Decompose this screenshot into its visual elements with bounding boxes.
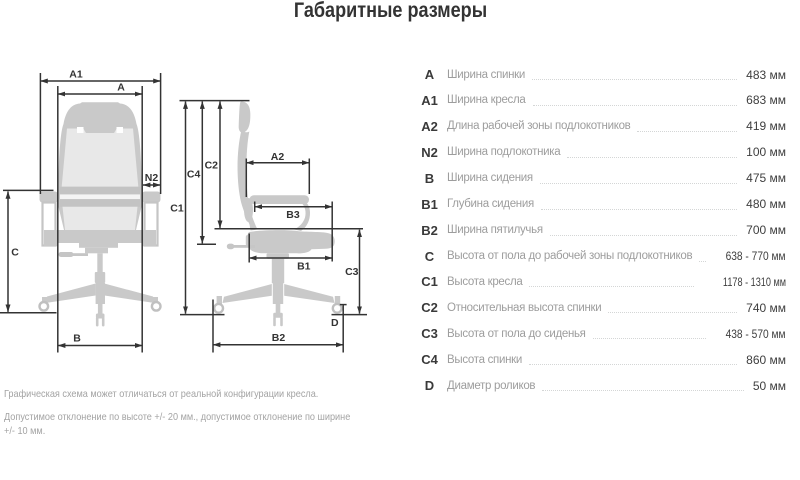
svg-text:B3: B3: [286, 209, 300, 221]
svg-text:B1: B1: [297, 261, 311, 273]
svg-text:C4: C4: [187, 169, 201, 181]
svg-text:B2: B2: [272, 332, 286, 344]
svg-text:A2: A2: [271, 151, 285, 163]
svg-text:N2: N2: [145, 172, 159, 184]
svg-text:C1: C1: [170, 203, 184, 215]
svg-text:C2: C2: [205, 160, 219, 172]
svg-text:A1: A1: [69, 69, 83, 81]
svg-text:C: C: [11, 247, 19, 259]
svg-text:C3: C3: [345, 266, 359, 278]
svg-text:D: D: [331, 317, 339, 329]
svg-text:B: B: [73, 333, 81, 345]
svg-text:A: A: [117, 82, 125, 94]
